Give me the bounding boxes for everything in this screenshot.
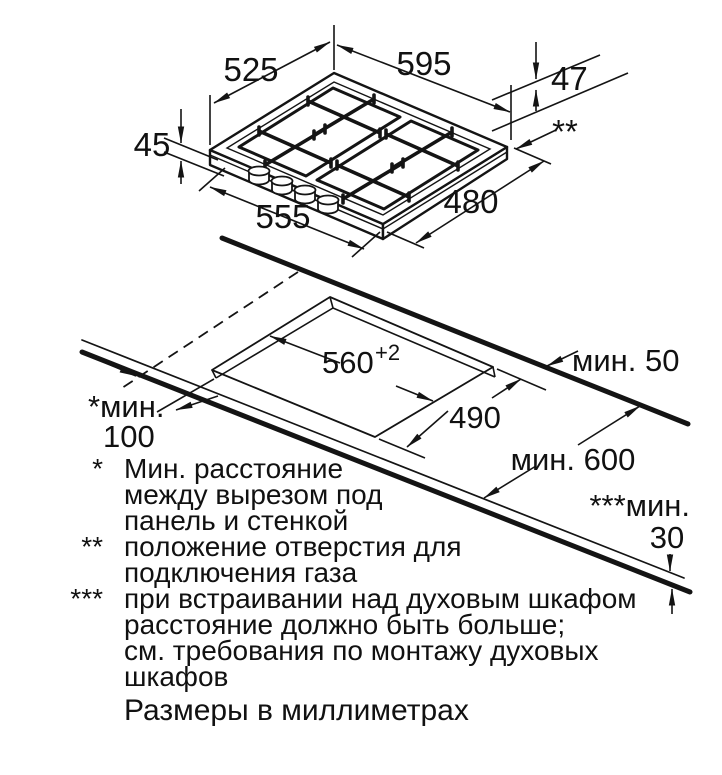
cutout-extension-right bbox=[497, 369, 546, 390]
knob-top-1 bbox=[249, 167, 270, 176]
dimension-label-490: 490 bbox=[449, 400, 501, 435]
knob-top-3 bbox=[295, 186, 316, 195]
arrow-490-upper bbox=[492, 379, 521, 398]
knob-top-4 bbox=[318, 196, 339, 205]
dimension-label-555: 555 bbox=[255, 198, 310, 235]
extension-480-right bbox=[514, 148, 551, 164]
dimension-label-560-tolerance: +2 bbox=[375, 340, 400, 365]
arrow-min100-left bbox=[99, 360, 136, 376]
dimension-label-595: 595 bbox=[396, 45, 451, 82]
footnote-marker-3: *** bbox=[70, 583, 103, 614]
dimension-label-47: 47 bbox=[551, 60, 588, 97]
gas-marker-leader bbox=[516, 130, 556, 149]
footnote-marker-2: ** bbox=[81, 531, 103, 562]
label-min-100-value: 100 bbox=[103, 419, 155, 454]
dimension-label-560: 560 bbox=[322, 345, 374, 380]
installation-diagram: 525 595 47 ** 45 555 480 bbox=[0, 0, 722, 775]
arrow-min600-upper bbox=[578, 406, 640, 445]
gas-marker-label: ** bbox=[552, 113, 578, 150]
units-note: Размеры в миллиметрах bbox=[124, 694, 469, 727]
footnote-3-line-4: шкафов bbox=[124, 661, 228, 692]
knob-top-2 bbox=[272, 177, 293, 186]
extension-555-right bbox=[352, 232, 380, 257]
arrow-490-lower bbox=[407, 411, 448, 447]
footnotes: * Мин. расстояние между вырезом под пане… bbox=[70, 453, 636, 727]
extension-480-left bbox=[387, 232, 424, 248]
diagram-svg: 525 595 47 ** 45 555 480 bbox=[0, 0, 722, 775]
dimension-label-525: 525 bbox=[223, 51, 278, 88]
label-min-30-value: 30 bbox=[650, 520, 684, 555]
dimension-label-45: 45 bbox=[134, 126, 171, 163]
label-min-30-prefix: ***мин. bbox=[589, 488, 690, 523]
cutout-extension-bottom bbox=[379, 439, 425, 458]
footnote-marker-1: * bbox=[92, 453, 103, 484]
label-min-50: мин. 50 bbox=[572, 343, 679, 378]
label-min-600: мин. 600 bbox=[511, 442, 636, 477]
dimension-label-480: 480 bbox=[443, 183, 498, 220]
